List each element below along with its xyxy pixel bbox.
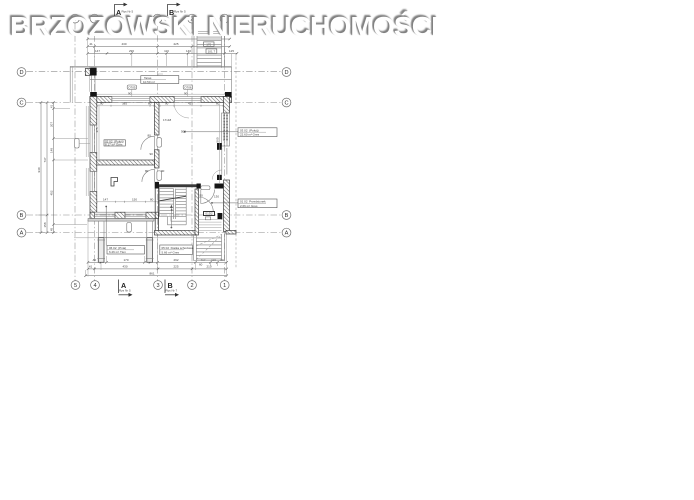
svg-text:8.17 m² Gres: 8.17 m² Gres [105,143,123,147]
svg-text:170: 170 [123,258,128,262]
svg-text:125: 125 [229,49,234,53]
svg-text:425: 425 [188,102,193,106]
svg-text:2: 2 [190,283,193,289]
svg-text:41: 41 [89,265,93,269]
svg-text:D: D [19,70,23,76]
svg-text:150: 150 [132,198,137,202]
svg-text:41: 41 [89,42,93,46]
svg-text:861: 861 [149,272,154,276]
svg-text:A: A [20,231,24,237]
svg-text:4: 4 [93,283,96,289]
svg-text:90: 90 [161,169,165,173]
svg-text:452: 452 [50,190,54,195]
svg-text:147: 147 [95,49,100,53]
svg-text:225: 225 [173,42,178,46]
svg-text:17x18: 17x18 [163,118,172,122]
svg-text:2.66 m² Gres: 2.66 m² Gres [240,204,258,208]
svg-text:110: 110 [164,49,169,53]
svg-text:140: 140 [186,49,191,53]
svg-text:210: 210 [206,265,211,269]
svg-text:O706: O706 [184,85,192,89]
svg-text:207: 207 [50,122,54,127]
svg-text:430: 430 [122,265,127,269]
svg-text:101.7: 101.7 [208,49,216,53]
svg-text:45: 45 [50,228,54,232]
svg-text:385: 385 [122,102,127,106]
svg-text:05 02 Klatka schodowa: 05 02 Klatka schodowa [162,246,194,250]
svg-text:290: 290 [129,49,134,53]
svg-text:90: 90 [200,194,204,198]
svg-text:B: B [285,213,289,219]
svg-text:940: 940 [37,167,41,172]
svg-text:375: 375 [95,127,99,132]
svg-text:80: 80 [148,134,152,138]
svg-text:41: 41 [50,105,54,109]
svg-text:-60: -60 [92,258,97,262]
svg-text:90: 90 [150,152,154,156]
svg-text:10.50 m²: 10.50 m² [143,80,155,84]
svg-text:60: 60 [216,102,220,106]
svg-text:5: 5 [74,283,77,289]
svg-text:80: 80 [150,198,154,202]
svg-text:D: D [284,70,288,76]
svg-text:737: 737 [43,157,47,162]
svg-text:B: B [20,213,24,219]
svg-text:90: 90 [128,92,132,96]
svg-text:22.60 m² Gres: 22.60 m² Gres [240,133,260,137]
svg-text:560: 560 [216,137,220,142]
svg-text:O705: O705 [128,85,136,89]
svg-text:90: 90 [165,102,169,106]
svg-text:1: 1 [223,283,226,289]
svg-text:130: 130 [214,195,219,199]
svg-text:225: 225 [173,265,178,269]
svg-text:5.66 m² Gres: 5.66 m² Gres [162,251,180,255]
svg-text:158: 158 [43,222,47,227]
svg-text:3: 3 [156,283,159,289]
svg-text:90: 90 [184,92,188,96]
svg-text:147: 147 [103,198,108,202]
svg-text:A: A [285,231,289,237]
svg-text:Rys Nr 5: Rys Nr 5 [119,289,131,293]
svg-text:505: 505 [181,130,186,134]
svg-text:01D2: 01D2 [205,212,213,216]
svg-text:Rys Nr 7: Rys Nr 7 [166,289,178,293]
svg-text:80: 80 [145,169,149,173]
svg-text:148: 148 [50,148,54,153]
svg-text:292: 292 [173,258,178,262]
svg-text:C: C [284,101,288,107]
svg-text:430: 430 [121,42,126,46]
svg-text:90: 90 [100,102,104,106]
svg-text:6.26 m² Tlen: 6.26 m² Tlen [109,250,126,254]
svg-text:60: 60 [148,102,152,106]
svg-text:60: 60 [199,263,203,267]
svg-text:C: C [19,101,23,107]
